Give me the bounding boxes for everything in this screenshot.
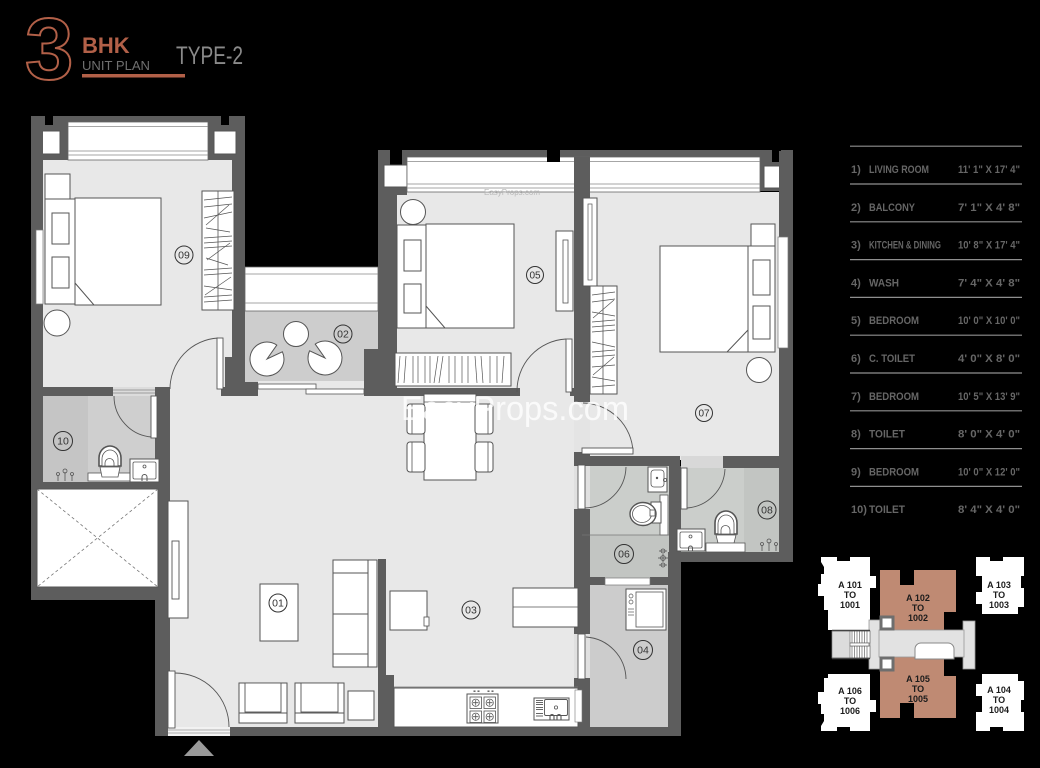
svg-text:07: 07: [698, 409, 710, 420]
svg-text:TOILET: TOILET: [869, 504, 905, 516]
svg-text:EasyProps.com: EasyProps.com: [401, 390, 629, 428]
svg-text:TO: TO: [993, 695, 1005, 705]
svg-text:BALCONY: BALCONY: [869, 202, 916, 214]
svg-text:TO: TO: [844, 590, 856, 600]
svg-text:TO: TO: [993, 590, 1005, 600]
svg-text:8' 4" X 4' 0": 8' 4" X 4' 0": [958, 504, 1020, 516]
svg-text:3: 3: [25, 1, 73, 98]
svg-text:03: 03: [465, 605, 477, 617]
svg-text:A 104: A 104: [987, 685, 1011, 695]
svg-text:9): 9): [851, 466, 861, 478]
svg-text:10' 5" X 13' 9": 10' 5" X 13' 9": [958, 391, 1020, 403]
svg-text:EasyProps.com: EasyProps.com: [484, 188, 540, 197]
svg-text:3): 3): [851, 240, 861, 252]
svg-text:LIVING ROOM: LIVING ROOM: [869, 164, 929, 176]
svg-text:10' 0" X 12' 0": 10' 0" X 12' 0": [958, 466, 1020, 478]
svg-text:4): 4): [851, 277, 861, 289]
svg-text:10' 0" X 10' 0": 10' 0" X 10' 0": [958, 315, 1020, 327]
svg-text:1006: 1006: [840, 706, 860, 716]
svg-text:8): 8): [851, 429, 861, 441]
svg-text:A 103: A 103: [987, 580, 1011, 590]
svg-text:A 105: A 105: [906, 674, 930, 684]
svg-text:BEDROOM: BEDROOM: [869, 391, 919, 403]
svg-text:KITCHEN & DINING: KITCHEN & DINING: [869, 240, 941, 252]
svg-text:BEDROOM: BEDROOM: [869, 315, 919, 327]
svg-text:06: 06: [618, 549, 630, 561]
svg-text:BHK: BHK: [82, 33, 130, 58]
svg-text:7): 7): [851, 391, 861, 403]
svg-text:C. TOILET: C. TOILET: [869, 353, 915, 365]
svg-text:01: 01: [272, 598, 284, 610]
svg-text:TO: TO: [912, 684, 924, 694]
svg-text:8' 0" X 4' 0": 8' 0" X 4' 0": [958, 429, 1020, 441]
svg-text:02: 02: [337, 329, 349, 341]
svg-text:TOILET: TOILET: [869, 429, 905, 441]
svg-text:A 101: A 101: [838, 580, 862, 590]
svg-text:A 102: A 102: [906, 593, 930, 603]
svg-text:TYPE-2: TYPE-2: [176, 42, 243, 70]
svg-text:05: 05: [529, 271, 541, 282]
svg-text:08: 08: [761, 505, 773, 517]
svg-text:09: 09: [178, 250, 190, 262]
svg-text:TO: TO: [844, 696, 856, 706]
svg-text:4' 0" X 8' 0": 4' 0" X 8' 0": [958, 353, 1020, 365]
svg-text:1005: 1005: [908, 694, 928, 704]
svg-text:5): 5): [851, 315, 861, 327]
svg-text:1003: 1003: [989, 600, 1009, 610]
svg-text:1002: 1002: [908, 613, 928, 623]
svg-text:10): 10): [851, 504, 867, 516]
svg-text:1004: 1004: [989, 705, 1009, 715]
svg-text:7' 1" X 4' 8": 7' 1" X 4' 8": [958, 202, 1020, 214]
svg-text:1): 1): [851, 164, 861, 176]
svg-text:A 106: A 106: [838, 686, 862, 696]
svg-text:10' 8" X 17' 4": 10' 8" X 17' 4": [958, 240, 1020, 252]
svg-text:7' 4" X 4' 8": 7' 4" X 4' 8": [958, 277, 1020, 289]
svg-text:BEDROOM: BEDROOM: [869, 466, 919, 478]
svg-text:2): 2): [851, 202, 861, 214]
svg-text:WASH: WASH: [869, 277, 899, 289]
svg-text:1001: 1001: [840, 600, 860, 610]
svg-text:10: 10: [57, 436, 69, 448]
svg-text:TO: TO: [912, 603, 924, 613]
svg-text:11' 1" X 17' 4": 11' 1" X 17' 4": [958, 164, 1020, 176]
svg-text:6): 6): [851, 353, 861, 365]
svg-text:04: 04: [637, 645, 649, 657]
svg-text:UNIT PLAN: UNIT PLAN: [82, 59, 150, 73]
